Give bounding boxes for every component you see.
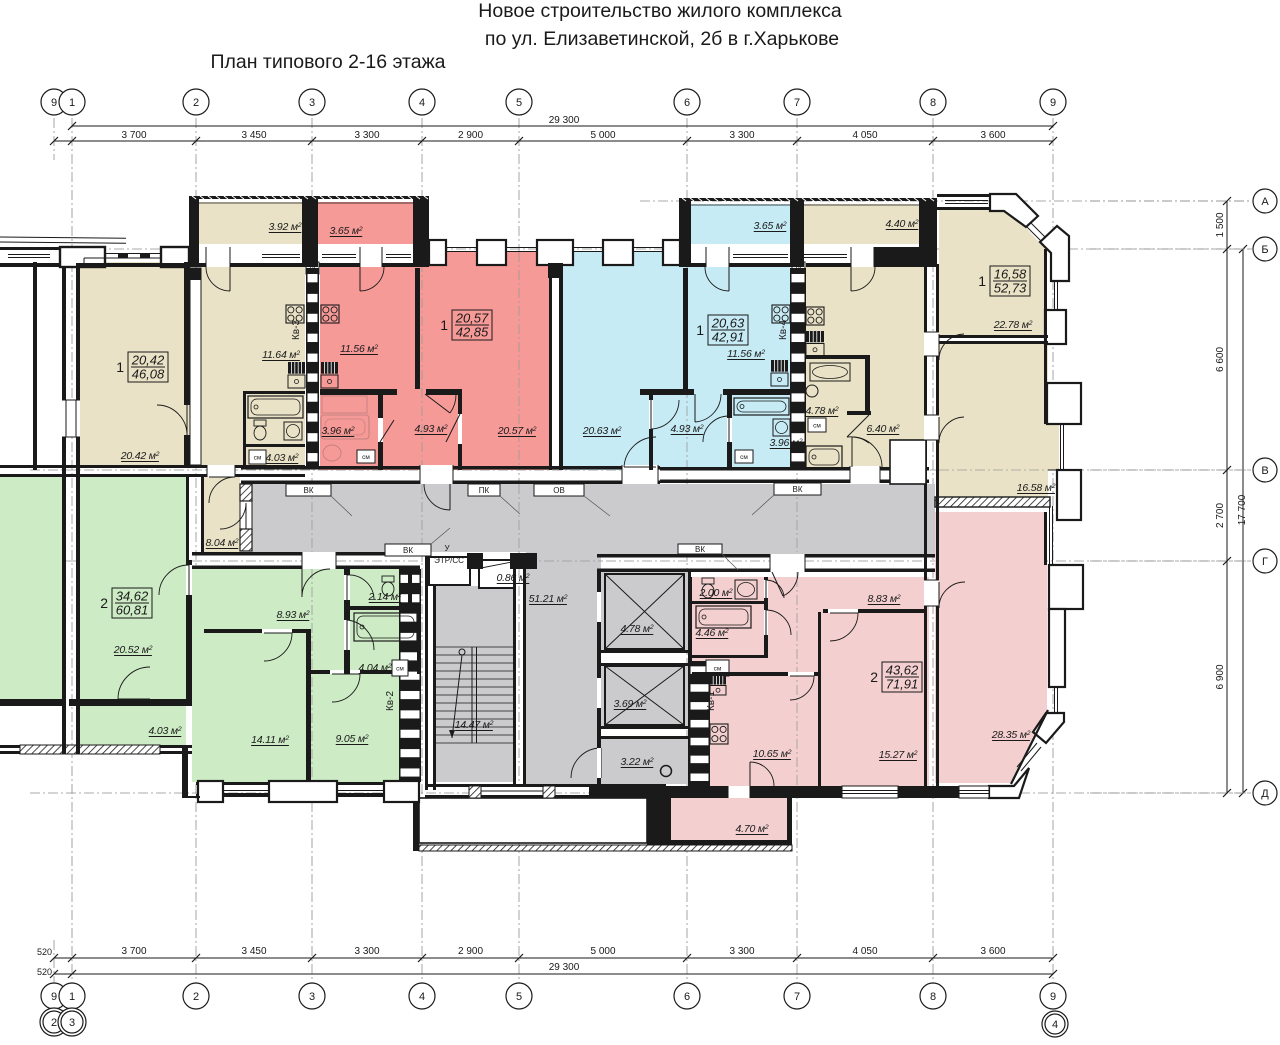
svg-text:Новое строительство жилого ком: Новое строительство жилого комплекса	[478, 0, 842, 22]
svg-text:3 450: 3 450	[241, 946, 266, 957]
svg-text:6.40 м2: 6.40 м2	[867, 423, 900, 435]
svg-text:20.52 м2: 20.52 м2	[113, 644, 153, 656]
svg-text:14.11 м2: 14.11 м2	[251, 734, 289, 746]
svg-text:1: 1	[69, 97, 75, 109]
svg-text:ВК: ВК	[695, 545, 705, 554]
svg-text:Кв-3: Кв-3	[291, 320, 302, 340]
svg-text:4.70 м2: 4.70 м2	[736, 823, 769, 835]
svg-text:52,73: 52,73	[994, 281, 1027, 296]
svg-text:3 300: 3 300	[729, 946, 754, 957]
svg-text:ВК: ВК	[793, 485, 803, 494]
svg-text:3 700: 3 700	[121, 130, 146, 141]
svg-text:1: 1	[440, 317, 448, 333]
svg-text:9: 9	[51, 97, 57, 109]
svg-text:Б: Б	[1261, 244, 1268, 256]
svg-text:17 700: 17 700	[1237, 494, 1248, 525]
svg-text:3: 3	[69, 1017, 75, 1029]
svg-text:6 600: 6 600	[1215, 347, 1226, 372]
svg-text:ПК: ПК	[479, 486, 490, 495]
svg-text:2 900: 2 900	[458, 130, 483, 141]
svg-text:2: 2	[100, 595, 108, 611]
svg-text:3 700: 3 700	[121, 946, 146, 957]
svg-text:9: 9	[51, 991, 57, 1003]
svg-text:4.78 м2: 4.78 м2	[806, 405, 839, 417]
svg-text:42,85: 42,85	[456, 325, 489, 340]
svg-text:ОВ: ОВ	[553, 486, 565, 495]
svg-text:см: см	[714, 665, 722, 672]
svg-text:10.65 м2: 10.65 м2	[753, 748, 792, 760]
svg-text:4 050: 4 050	[852, 946, 877, 957]
svg-text:см: см	[813, 422, 821, 429]
svg-text:16,58: 16,58	[994, 267, 1027, 282]
svg-text:9: 9	[1050, 991, 1056, 1003]
svg-text:4: 4	[419, 991, 425, 1003]
svg-text:3 300: 3 300	[354, 130, 379, 141]
svg-text:2.00 м2: 2.00 м2	[699, 587, 733, 599]
svg-text:3 300: 3 300	[729, 130, 754, 141]
svg-text:2: 2	[870, 669, 878, 685]
svg-text:46,08: 46,08	[132, 367, 165, 382]
svg-text:9: 9	[1050, 97, 1056, 109]
svg-text:8.93 м2: 8.93 м2	[277, 609, 310, 621]
svg-text:5 000: 5 000	[590, 130, 615, 141]
svg-text:9.05 м2: 9.05 м2	[336, 733, 369, 745]
svg-text:3.65 м2: 3.65 м2	[754, 220, 787, 232]
svg-text:Г: Г	[1262, 556, 1268, 568]
svg-text:4.46 м2: 4.46 м2	[696, 627, 729, 639]
svg-text:0.86 м2: 0.86 м2	[497, 572, 530, 584]
svg-text:3 600: 3 600	[980, 130, 1005, 141]
svg-text:В: В	[1261, 465, 1268, 477]
svg-text:Кв-2: Кв-2	[385, 691, 396, 711]
svg-text:4.93 м2: 4.93 м2	[671, 423, 704, 435]
svg-text:20.42 м2: 20.42 м2	[120, 450, 160, 462]
svg-text:Кв-4: Кв-4	[778, 320, 789, 340]
svg-text:2: 2	[51, 1017, 57, 1029]
svg-text:2 900: 2 900	[458, 946, 483, 957]
svg-text:6: 6	[684, 991, 690, 1003]
svg-text:20,42: 20,42	[131, 353, 165, 368]
svg-text:2: 2	[193, 97, 199, 109]
svg-text:4.78 м2: 4.78 м2	[621, 623, 654, 635]
svg-text:3.96 м2: 3.96 м2	[322, 425, 355, 437]
svg-text:20.57 м2: 20.57 м2	[497, 425, 537, 437]
svg-text:15.27 м2: 15.27 м2	[879, 749, 918, 761]
svg-text:А: А	[1261, 196, 1269, 208]
svg-text:14.47 м2: 14.47 м2	[455, 719, 494, 731]
svg-text:8.83 м2: 8.83 м2	[868, 593, 901, 605]
svg-text:6: 6	[684, 97, 690, 109]
svg-text:см: см	[740, 454, 748, 461]
svg-text:ЭТР/СС: ЭТР/СС	[434, 556, 464, 565]
svg-text:11.64 м2: 11.64 м2	[262, 349, 300, 361]
svg-text:2 700: 2 700	[1215, 503, 1226, 528]
svg-text:1: 1	[69, 991, 75, 1003]
svg-text:1: 1	[978, 273, 986, 289]
svg-text:4: 4	[1052, 1019, 1058, 1031]
svg-text:29 300: 29 300	[549, 962, 580, 973]
svg-text:4.93 м2: 4.93 м2	[415, 423, 448, 435]
svg-text:28.35 м2: 28.35 м2	[991, 729, 1031, 741]
svg-text:60,81: 60,81	[116, 603, 149, 618]
svg-text:2: 2	[193, 991, 199, 1003]
svg-text:2.14 м2: 2.14 м2	[368, 591, 402, 603]
svg-text:3.65 м2: 3.65 м2	[330, 225, 363, 237]
svg-text:8.04 м2: 8.04 м2	[206, 537, 239, 549]
svg-text:см: см	[254, 454, 262, 461]
svg-text:3.69 м2: 3.69 м2	[614, 698, 647, 710]
svg-text:51.21 м2: 51.21 м2	[529, 593, 568, 605]
svg-text:71,91: 71,91	[886, 677, 919, 692]
svg-text:см: см	[396, 665, 404, 672]
svg-text:3 300: 3 300	[354, 946, 379, 957]
svg-text:5: 5	[516, 991, 522, 1003]
svg-text:Д: Д	[1261, 788, 1269, 800]
svg-text:4.04 м2: 4.04 м2	[359, 662, 392, 674]
svg-text:3: 3	[309, 991, 315, 1003]
svg-text:20,57: 20,57	[455, 311, 489, 326]
svg-text:520: 520	[37, 967, 52, 977]
svg-text:29 300: 29 300	[549, 115, 580, 126]
svg-text:8: 8	[930, 97, 936, 109]
svg-text:см: см	[362, 454, 370, 461]
svg-text:ВК: ВК	[304, 486, 314, 495]
svg-text:7: 7	[794, 991, 800, 1003]
svg-text:ВК: ВК	[403, 546, 413, 555]
svg-text:4: 4	[419, 97, 425, 109]
svg-text:4 050: 4 050	[852, 130, 877, 141]
svg-text:3.22 м2: 3.22 м2	[621, 756, 654, 768]
svg-text:11.56 м2: 11.56 м2	[340, 343, 378, 355]
svg-text:1: 1	[696, 322, 704, 338]
svg-text:1 500: 1 500	[1215, 212, 1226, 237]
svg-text:6 900: 6 900	[1215, 664, 1226, 689]
svg-text:20.63 м2: 20.63 м2	[582, 425, 622, 437]
svg-text:4.40 м2: 4.40 м2	[886, 218, 919, 230]
svg-text:3: 3	[309, 97, 315, 109]
svg-text:11.56 м2: 11.56 м2	[727, 348, 765, 360]
svg-text:1: 1	[116, 359, 124, 375]
svg-text:43,62: 43,62	[886, 663, 919, 678]
svg-text:34,62: 34,62	[116, 589, 149, 604]
svg-text:4.03 м2: 4.03 м2	[266, 452, 299, 464]
svg-text:8: 8	[930, 991, 936, 1003]
svg-text:по ул. Елизаветинской, 2б в г.: по ул. Елизаветинской, 2б в г.Харькове	[485, 28, 839, 50]
svg-text:4.03 м2: 4.03 м2	[149, 725, 182, 737]
svg-text:3.96 м2: 3.96 м2	[770, 437, 803, 449]
svg-text:22.78 м2: 22.78 м2	[993, 319, 1033, 331]
svg-text:16.58 м2: 16.58 м2	[1017, 482, 1056, 494]
svg-text:42,91: 42,91	[712, 330, 745, 345]
svg-text:3 450: 3 450	[241, 130, 266, 141]
svg-text:5: 5	[516, 97, 522, 109]
svg-text:20,63: 20,63	[711, 316, 745, 331]
svg-text:5 000: 5 000	[590, 946, 615, 957]
svg-text:7: 7	[794, 97, 800, 109]
svg-text:План типового 2-16 этажа: План типового 2-16 этажа	[211, 51, 446, 73]
svg-text:520: 520	[37, 947, 52, 957]
svg-text:3 600: 3 600	[980, 946, 1005, 957]
svg-text:Кв-1: Кв-1	[706, 691, 717, 711]
svg-text:3.92 м2: 3.92 м2	[269, 221, 302, 233]
